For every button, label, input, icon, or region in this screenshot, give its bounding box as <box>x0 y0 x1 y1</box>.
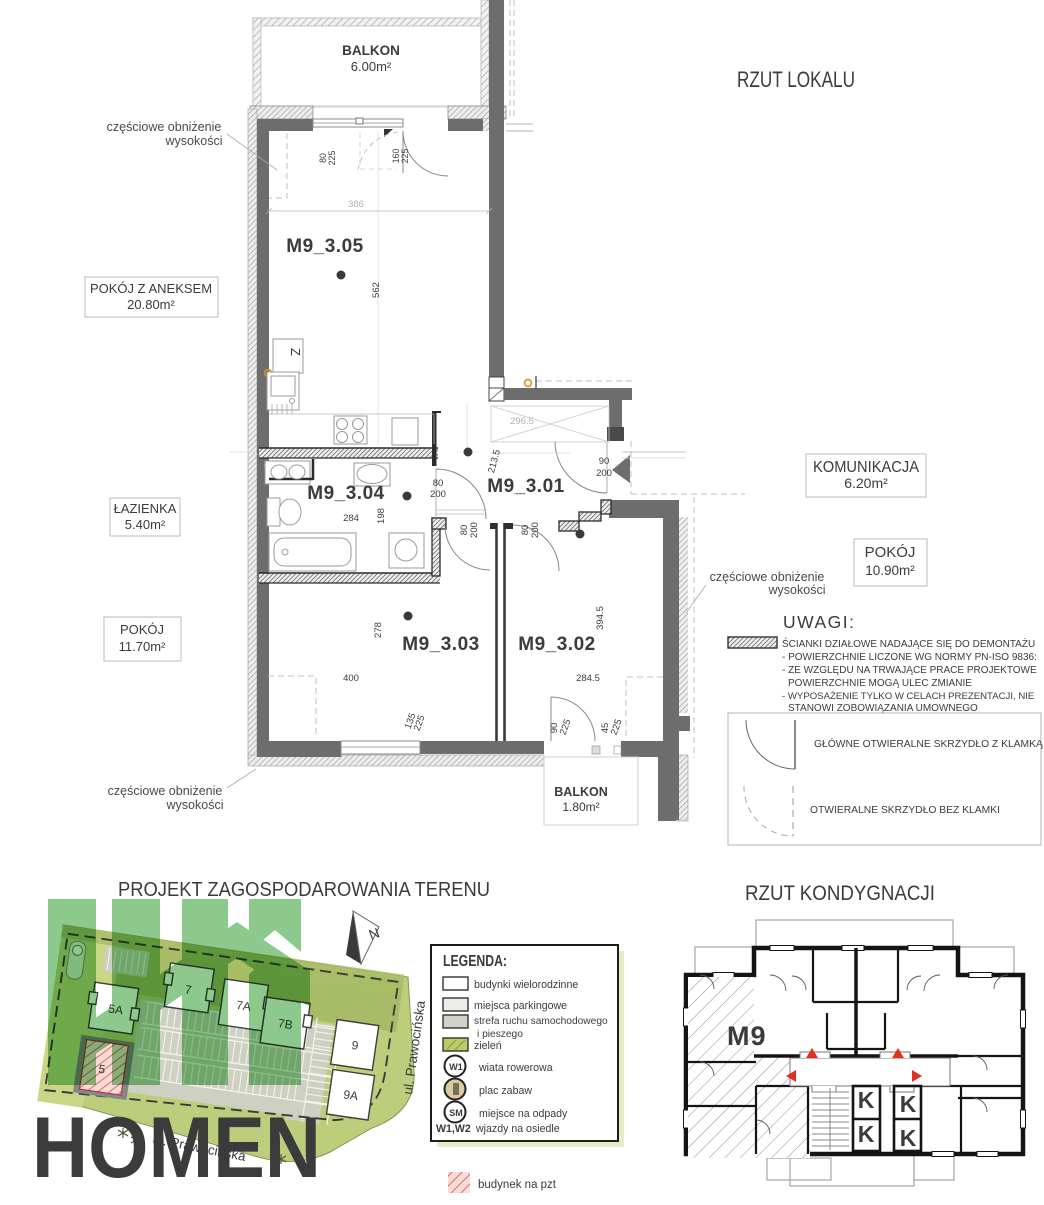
svg-text:90: 90 <box>599 456 610 467</box>
svg-text:386: 386 <box>348 199 364 210</box>
svg-text:9A: 9A <box>342 1087 359 1103</box>
svg-text:częściowe obniżenie: częściowe obniżenie <box>108 784 223 798</box>
svg-text:80: 80 <box>433 478 444 489</box>
svg-text:wysokości: wysokości <box>768 583 826 597</box>
svg-text:POKÓJ Z ANEKSEM: POKÓJ Z ANEKSEM <box>90 281 212 296</box>
svg-text:- WYPOSAŻENIE TYLKO W CELACH P: - WYPOSAŻENIE TYLKO W CELACH PREZENTACJI… <box>782 691 1034 702</box>
svg-text:PROJEKT ZAGOSPODAROWANIA TEREN: PROJEKT ZAGOSPODAROWANIA TERENU <box>118 878 490 901</box>
svg-text:296.5: 296.5 <box>510 416 534 427</box>
svg-text:- POWIERZCHNIE LICZONE WG NORM: - POWIERZCHNIE LICZONE WG NORMY PN-ISO 9… <box>782 652 1037 663</box>
svg-text:ŚCIANKI DZIAŁOWE NADAJĄCE SIĘ: ŚCIANKI DZIAŁOWE NADAJĄCE SIĘ DO DEMONTA… <box>782 637 1035 650</box>
svg-text:M9_3.01: M9_3.01 <box>487 476 564 497</box>
svg-text:198: 198 <box>376 508 387 524</box>
svg-text:M9_3.04: M9_3.04 <box>307 483 384 504</box>
svg-text:KOMUNIKACJA: KOMUNIKACJA <box>813 459 920 476</box>
svg-text:K: K <box>858 1121 875 1147</box>
svg-text:BALKON: BALKON <box>342 43 400 58</box>
svg-text:200: 200 <box>469 522 480 538</box>
svg-text:10.90m²: 10.90m² <box>865 563 915 578</box>
svg-text:11.70m²: 11.70m² <box>119 639 166 654</box>
svg-text:394.5: 394.5 <box>595 606 606 630</box>
svg-text:5.40m²: 5.40m² <box>125 517 166 532</box>
svg-text:GŁÓWNE OTWIERALNE SKRZYDŁO Z K: GŁÓWNE OTWIERALNE SKRZYDŁO Z KLAMKĄ <box>814 737 1043 750</box>
svg-text:i pieszego: i pieszego <box>477 1029 523 1040</box>
svg-text:BALKON: BALKON <box>554 785 607 799</box>
svg-text:284.5: 284.5 <box>576 673 600 684</box>
svg-text:zieleń: zieleń <box>474 1040 502 1052</box>
svg-text:6.20m²: 6.20m² <box>844 475 888 491</box>
svg-text:K: K <box>900 1091 917 1117</box>
svg-text:- ZE WZGLĘDU NA TRWAJĄCE PRACE: - ZE WZGLĘDU NA TRWAJĄCE PRACE PROJEKTOW… <box>782 665 1037 676</box>
svg-text:POKÓJ: POKÓJ <box>865 544 916 561</box>
svg-text:OTWIERALNE SKRZYDŁO BEZ KLAMKI: OTWIERALNE SKRZYDŁO BEZ KLAMKI <box>810 805 1000 816</box>
svg-text:wjazdy na osiedle: wjazdy na osiedle <box>475 1123 560 1135</box>
svg-text:278: 278 <box>373 622 384 638</box>
svg-text:miejsca parkingowe: miejsca parkingowe <box>474 1000 567 1012</box>
svg-text:LEGENDA:: LEGENDA: <box>443 953 507 970</box>
svg-text:wysokości: wysokości <box>165 134 223 148</box>
svg-text:M9: M9 <box>727 1021 767 1051</box>
svg-text:STANOWI ZOBOWIĄZANIA UMOWNEGO: STANOWI ZOBOWIĄZANIA UMOWNEGO <box>788 703 978 714</box>
svg-text:M9_3.02: M9_3.02 <box>518 634 595 655</box>
svg-text:POKÓJ: POKÓJ <box>120 622 164 637</box>
svg-text:K: K <box>900 1125 917 1151</box>
svg-text:RZUT KONDYGNACJI: RZUT KONDYGNACJI <box>745 881 935 905</box>
svg-text:562: 562 <box>371 282 382 298</box>
svg-text:ŁAZIENKA: ŁAZIENKA <box>114 501 177 516</box>
svg-text:M9_3.03: M9_3.03 <box>402 634 479 655</box>
svg-text:Z: Z <box>288 348 303 356</box>
svg-text:W1: W1 <box>449 1062 463 1072</box>
svg-text:1.80m²: 1.80m² <box>562 800 599 814</box>
svg-text:HOMEN: HOMEN <box>32 1100 321 1196</box>
svg-text:wiata rowerowa: wiata rowerowa <box>478 1062 553 1074</box>
svg-text:20.80m²: 20.80m² <box>127 297 175 312</box>
svg-text:częściowe obniżenie: częściowe obniżenie <box>107 120 222 134</box>
svg-text:225: 225 <box>327 151 337 166</box>
svg-text:UWAGI:: UWAGI: <box>783 612 856 632</box>
svg-text:wysokości: wysokości <box>166 798 224 812</box>
svg-text:miejsce na odpady: miejsce na odpady <box>479 1108 568 1120</box>
svg-text:M9_3.05: M9_3.05 <box>286 236 363 257</box>
svg-text:częściowe obniżenie: częściowe obniżenie <box>710 570 825 584</box>
svg-text:225: 225 <box>400 149 410 164</box>
svg-text:400: 400 <box>343 673 359 684</box>
svg-text:284: 284 <box>343 513 359 524</box>
svg-text:budynek na pzt: budynek na pzt <box>478 1179 557 1191</box>
svg-text:SM: SM <box>449 1108 463 1118</box>
svg-text:strefa ruchu samochodowego: strefa ruchu samochodowego <box>474 1016 608 1027</box>
svg-text:budynki wielorodzinne: budynki wielorodzinne <box>474 979 578 991</box>
svg-text:RZUT LOKALU: RZUT LOKALU <box>737 67 855 92</box>
svg-text:POWIERZCHNIE MOGĄ ULEC ZMIANIE: POWIERZCHNIE MOGĄ ULEC ZMIANIE <box>788 678 972 689</box>
svg-text:6.00m²: 6.00m² <box>351 59 392 74</box>
svg-text:200: 200 <box>530 522 541 538</box>
svg-text:200: 200 <box>430 489 446 500</box>
svg-text:K: K <box>858 1087 875 1113</box>
svg-text:200: 200 <box>596 468 612 479</box>
svg-text:W1,W2: W1,W2 <box>436 1123 471 1135</box>
svg-text:plac zabaw: plac zabaw <box>479 1085 532 1097</box>
